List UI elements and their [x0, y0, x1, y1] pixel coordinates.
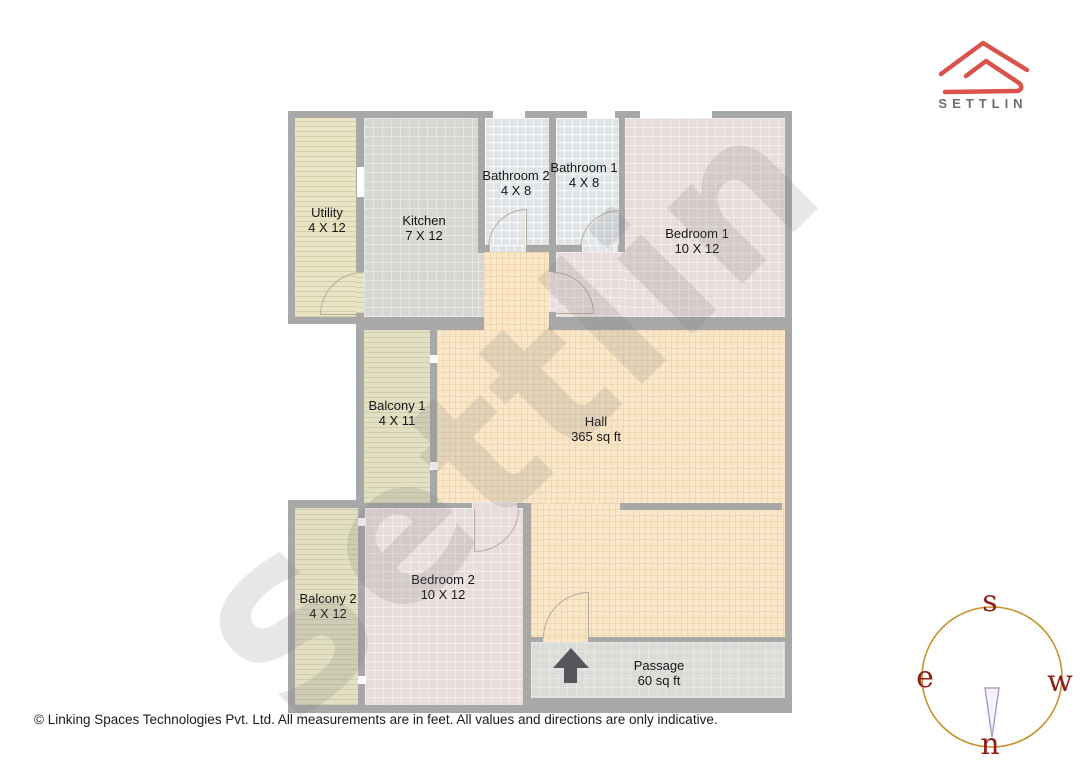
room-name: Bedroom 1: [665, 226, 729, 241]
bathroom1-window: [587, 111, 615, 118]
room-label-bathroom2: Bathroom 2 4 X 8: [482, 168, 549, 198]
room-dims: 4 X 8: [550, 175, 617, 190]
compass: s e w n: [912, 585, 1072, 757]
entrance-arrow-icon: [553, 648, 589, 668]
bathroom2-window: [493, 111, 525, 118]
room-dims: 4 X 11: [368, 413, 425, 428]
room-label-bathroom1: Bathroom 1 4 X 8: [550, 160, 617, 190]
room-label-passage: Passage 60 sq ft: [634, 658, 685, 688]
room-name: Bathroom 2: [482, 168, 549, 183]
entrance-arrow-stem: [564, 666, 577, 683]
balcony1-opening-top: [430, 355, 438, 363]
room-label-kitchen: Kitchen 7 X 12: [402, 213, 445, 243]
compass-west: w: [1047, 667, 1073, 697]
hall-corridor: [484, 252, 549, 332]
balcony1-opening-bottom: [430, 462, 438, 470]
room-dims: 4 X 8: [482, 183, 549, 198]
room-label-bedroom2: Bedroom 2 10 X 12: [411, 572, 475, 602]
room-label-balcony1: Balcony 1 4 X 11: [368, 398, 425, 428]
room-bedroom1-floor: [625, 118, 785, 317]
room-dims: 365 sq ft: [571, 429, 621, 444]
room-dims: 7 X 12: [402, 228, 445, 243]
settlin-logo-icon: [933, 34, 1033, 98]
compass-north: n: [980, 730, 999, 760]
room-dims: 60 sq ft: [634, 673, 685, 688]
balcony2-opening-bottom: [358, 676, 366, 684]
room-label-utility: Utility 4 X 12: [308, 205, 346, 235]
outside-area: [288, 324, 356, 500]
brand-name: SETTLIN: [928, 96, 1038, 111]
room-label-bedroom1: Bedroom 1 10 X 12: [665, 226, 729, 256]
room-name: Utility: [308, 205, 346, 220]
room-dims: 10 X 12: [411, 587, 475, 602]
compass-south: s: [982, 587, 997, 617]
floor-plan: Utility 4 X 12 Kitchen 7 X 12 Bathroom 2…: [288, 111, 792, 713]
bedroom2-door-gap: [472, 502, 517, 509]
room-name: Passage: [634, 658, 685, 673]
room-dims: 10 X 12: [665, 241, 729, 256]
utility-window: [357, 167, 364, 197]
balcony2-opening-top: [358, 518, 366, 526]
room-name: Hall: [571, 414, 621, 429]
room-name: Bathroom 1: [550, 160, 617, 175]
floor-plan-page: Settlin SETTLIN: [0, 0, 1080, 764]
room-dims: 4 X 12: [308, 220, 346, 235]
compass-east: e: [916, 663, 934, 693]
room-name: Balcony 1: [368, 398, 425, 413]
room-dims: 4 X 12: [299, 606, 356, 621]
hall-partition-wall: [620, 503, 782, 510]
room-name: Balcony 2: [299, 591, 356, 606]
room-label-hall: Hall 365 sq ft: [571, 414, 621, 444]
bedroom1-window: [640, 111, 712, 118]
room-label-balcony2: Balcony 2 4 X 12: [299, 591, 356, 621]
room-name: Bedroom 2: [411, 572, 475, 587]
room-name: Kitchen: [402, 213, 445, 228]
footer-disclaimer: © Linking Spaces Technologies Pvt. Ltd. …: [34, 712, 718, 727]
